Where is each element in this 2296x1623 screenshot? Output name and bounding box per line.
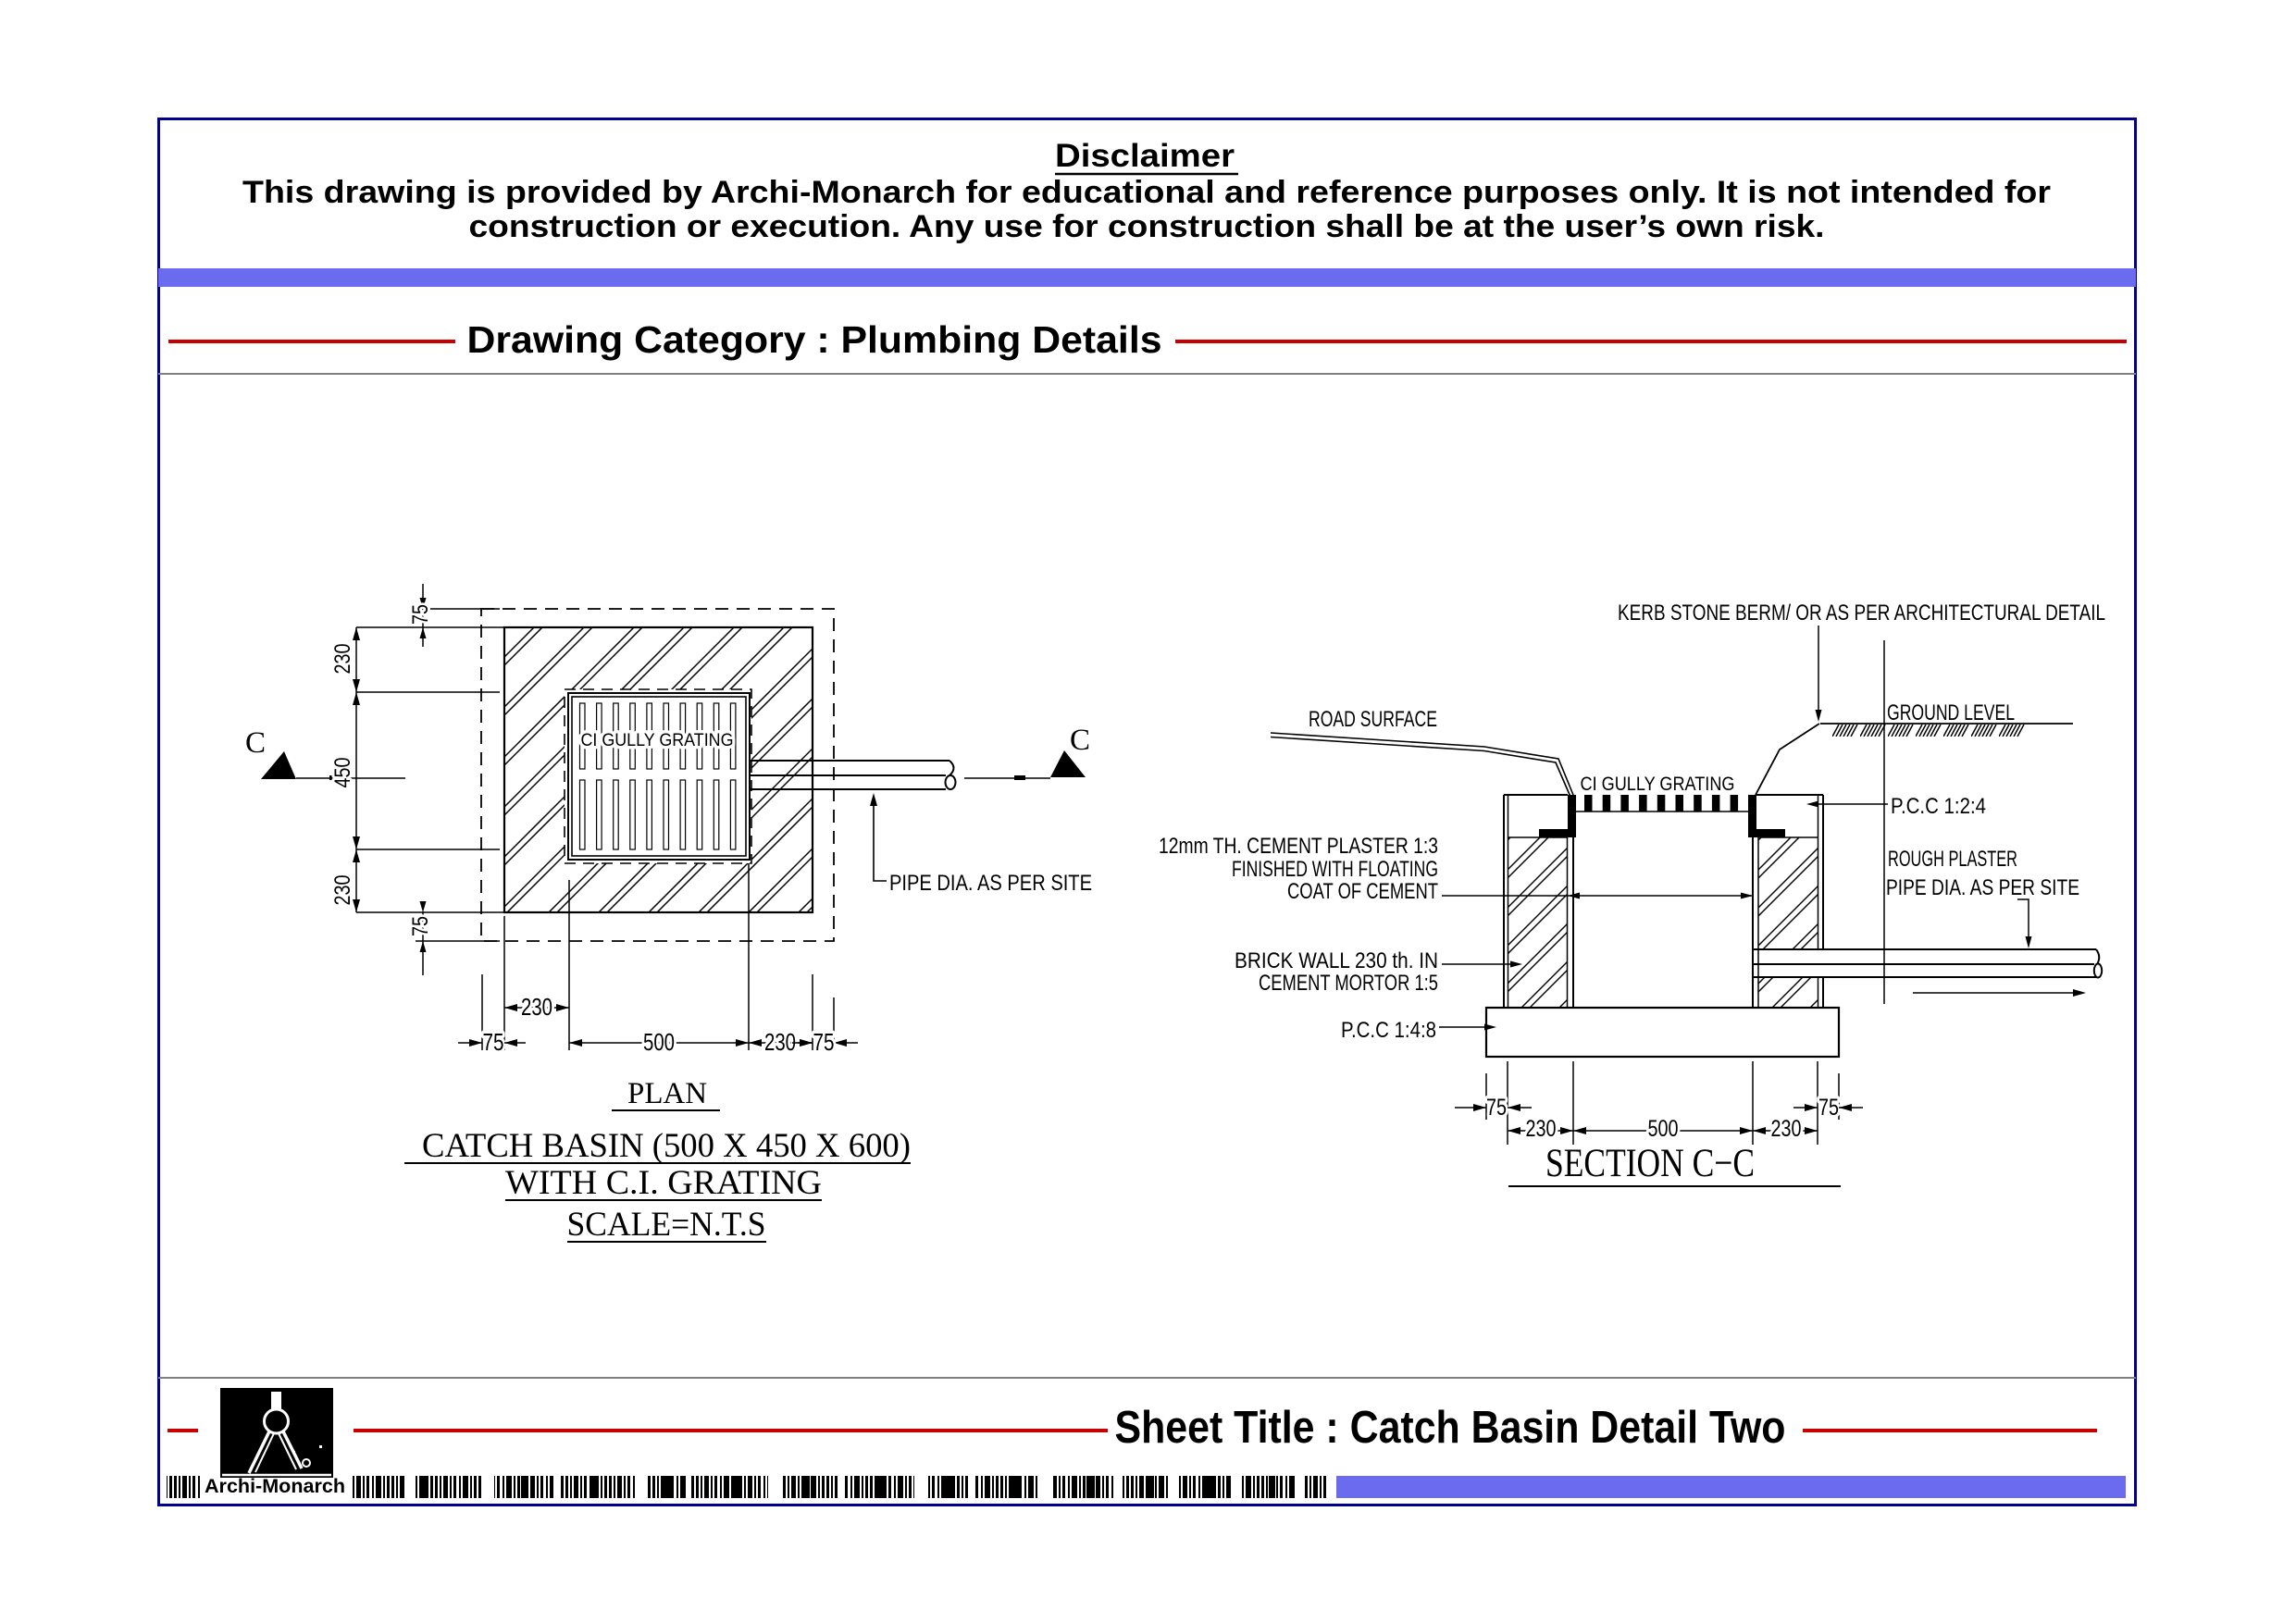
svg-text:GROUND LEVEL: GROUND LEVEL xyxy=(1887,700,2015,725)
svg-text:CI GULLY GRATING: CI GULLY GRATING xyxy=(1581,774,1735,795)
svg-text:Sheet Title : Catch Basin Deta: Sheet Title : Catch Basin Detail Two xyxy=(1115,1403,1786,1453)
svg-text:CATCH BASIN (500 X 450 X 600): CATCH BASIN (500 X 450 X 600) xyxy=(422,1127,911,1165)
svg-text:500: 500 xyxy=(643,1028,675,1056)
svg-text:FINISHED WITH FLOATING: FINISHED WITH FLOATING xyxy=(1232,857,1438,882)
svg-text:Drawing Category : Plumbing De: Drawing Category : Plumbing Details xyxy=(467,318,1162,361)
svg-text:CEMENT MORTOR 1:5: CEMENT MORTOR 1:5 xyxy=(1259,971,1438,996)
svg-text:SCALE=N.T.S: SCALE=N.T.S xyxy=(567,1206,766,1244)
svg-text:PIPE DIA. AS PER SITE: PIPE DIA. AS PER SITE xyxy=(1886,875,2079,900)
svg-text:230: 230 xyxy=(1771,1116,1802,1142)
svg-text:Archi-Monarch: Archi-Monarch xyxy=(205,1476,345,1497)
svg-text:This drawing is provided by Ar: This drawing is provided by Archi-Monarc… xyxy=(242,175,2051,210)
svg-text:230: 230 xyxy=(1526,1116,1557,1142)
svg-text:75: 75 xyxy=(408,916,433,936)
svg-text:ROAD SURFACE: ROAD SURFACE xyxy=(1309,707,1437,732)
svg-text:450: 450 xyxy=(330,758,355,788)
svg-text:500: 500 xyxy=(1648,1116,1679,1142)
svg-text:COAT OF CEMENT: COAT OF CEMENT xyxy=(1287,879,1438,904)
svg-text:Disclaimer: Disclaimer xyxy=(1055,138,1235,174)
svg-text:KERB STONE BERM/ OR AS PER ARC: KERB STONE BERM/ OR AS PER ARCHITECTURAL… xyxy=(1618,601,2105,626)
svg-text:construction or execution. Any: construction or execution. Any use for c… xyxy=(469,209,1825,244)
svg-text:C: C xyxy=(1070,724,1090,757)
svg-text:WITH C.I. GRATING: WITH C.I. GRATING xyxy=(505,1164,822,1202)
svg-text:BRICK WALL 230 th. IN: BRICK WALL 230 th. IN xyxy=(1235,948,1438,973)
svg-text:P.C.C 1:2:4: P.C.C 1:2:4 xyxy=(1891,794,1986,819)
svg-text:230: 230 xyxy=(330,875,355,906)
svg-text:75: 75 xyxy=(408,604,433,625)
svg-text:SECTION C−C: SECTION C−C xyxy=(1545,1142,1755,1185)
svg-text:C: C xyxy=(245,726,266,760)
svg-text:75: 75 xyxy=(813,1028,835,1056)
svg-text:230: 230 xyxy=(764,1028,796,1056)
svg-text:230: 230 xyxy=(521,993,552,1021)
svg-text:230: 230 xyxy=(330,644,355,675)
svg-text:12mm TH. CEMENT PLASTER 1:3: 12mm TH. CEMENT PLASTER 1:3 xyxy=(1159,834,1438,859)
svg-text:CI GULLY GRATING: CI GULLY GRATING xyxy=(581,731,734,750)
svg-text:PLAN: PLAN xyxy=(627,1077,707,1110)
svg-text:P.C.C 1:4:8: P.C.C 1:4:8 xyxy=(1341,1018,1436,1043)
svg-text:75: 75 xyxy=(483,1028,504,1056)
svg-text:75: 75 xyxy=(1486,1095,1507,1121)
svg-text:PIPE DIA. AS PER SITE: PIPE DIA. AS PER SITE xyxy=(889,871,1092,896)
svg-text:ROUGH PLASTER: ROUGH PLASTER xyxy=(1888,847,2017,872)
svg-text:75: 75 xyxy=(1818,1095,1839,1121)
